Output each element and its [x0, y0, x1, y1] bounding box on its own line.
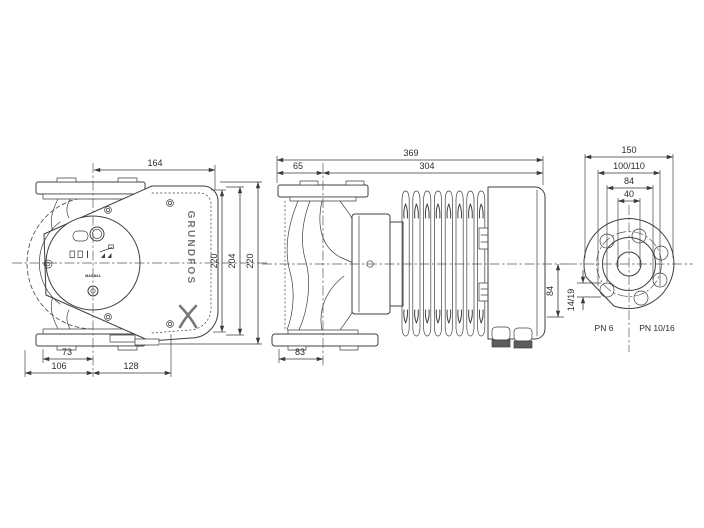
dim-164: 164 [147, 158, 162, 168]
drawing-canvas: MAGNA1 GRUNDFOS 164 220 204 [0, 0, 704, 528]
dim-84-flange: 84 [624, 176, 634, 186]
brand-logo-text: GRUNDFOS [185, 211, 196, 286]
dim-369: 369 [403, 148, 418, 158]
dim-100-110: 100/110 [613, 161, 645, 171]
pn6-label: PN 6 [595, 323, 614, 333]
dim-106: 106 [51, 361, 66, 371]
dim-14-19: 14/19 [566, 289, 576, 312]
dim-220-outer: 220 [245, 253, 255, 268]
side-view: 369 65 304 83 84 [262, 148, 568, 368]
flange-view: 150 100/110 84 40 14/19 PN 6 PN 10/16 [566, 145, 693, 352]
control-end-box [488, 187, 545, 339]
dim-73: 73 [62, 347, 72, 357]
stator-fins [402, 191, 485, 336]
dim-84-side: 84 [545, 286, 555, 296]
dim-304: 304 [419, 161, 434, 171]
side-bottom-flange [272, 330, 378, 350]
dim-128: 128 [123, 361, 138, 371]
dim-83: 83 [295, 347, 305, 357]
dim-150: 150 [621, 145, 636, 155]
pump-dimension-drawing: MAGNA1 GRUNDFOS 164 220 204 [0, 0, 704, 528]
pn1016-label: PN 10/16 [639, 323, 675, 333]
dim-65: 65 [293, 161, 303, 171]
front-view: MAGNA1 GRUNDFOS 164 220 204 [12, 158, 268, 377]
dim-204: 204 [227, 253, 237, 268]
dim-40: 40 [624, 189, 634, 199]
dim-220-inner: 220 [209, 253, 219, 268]
